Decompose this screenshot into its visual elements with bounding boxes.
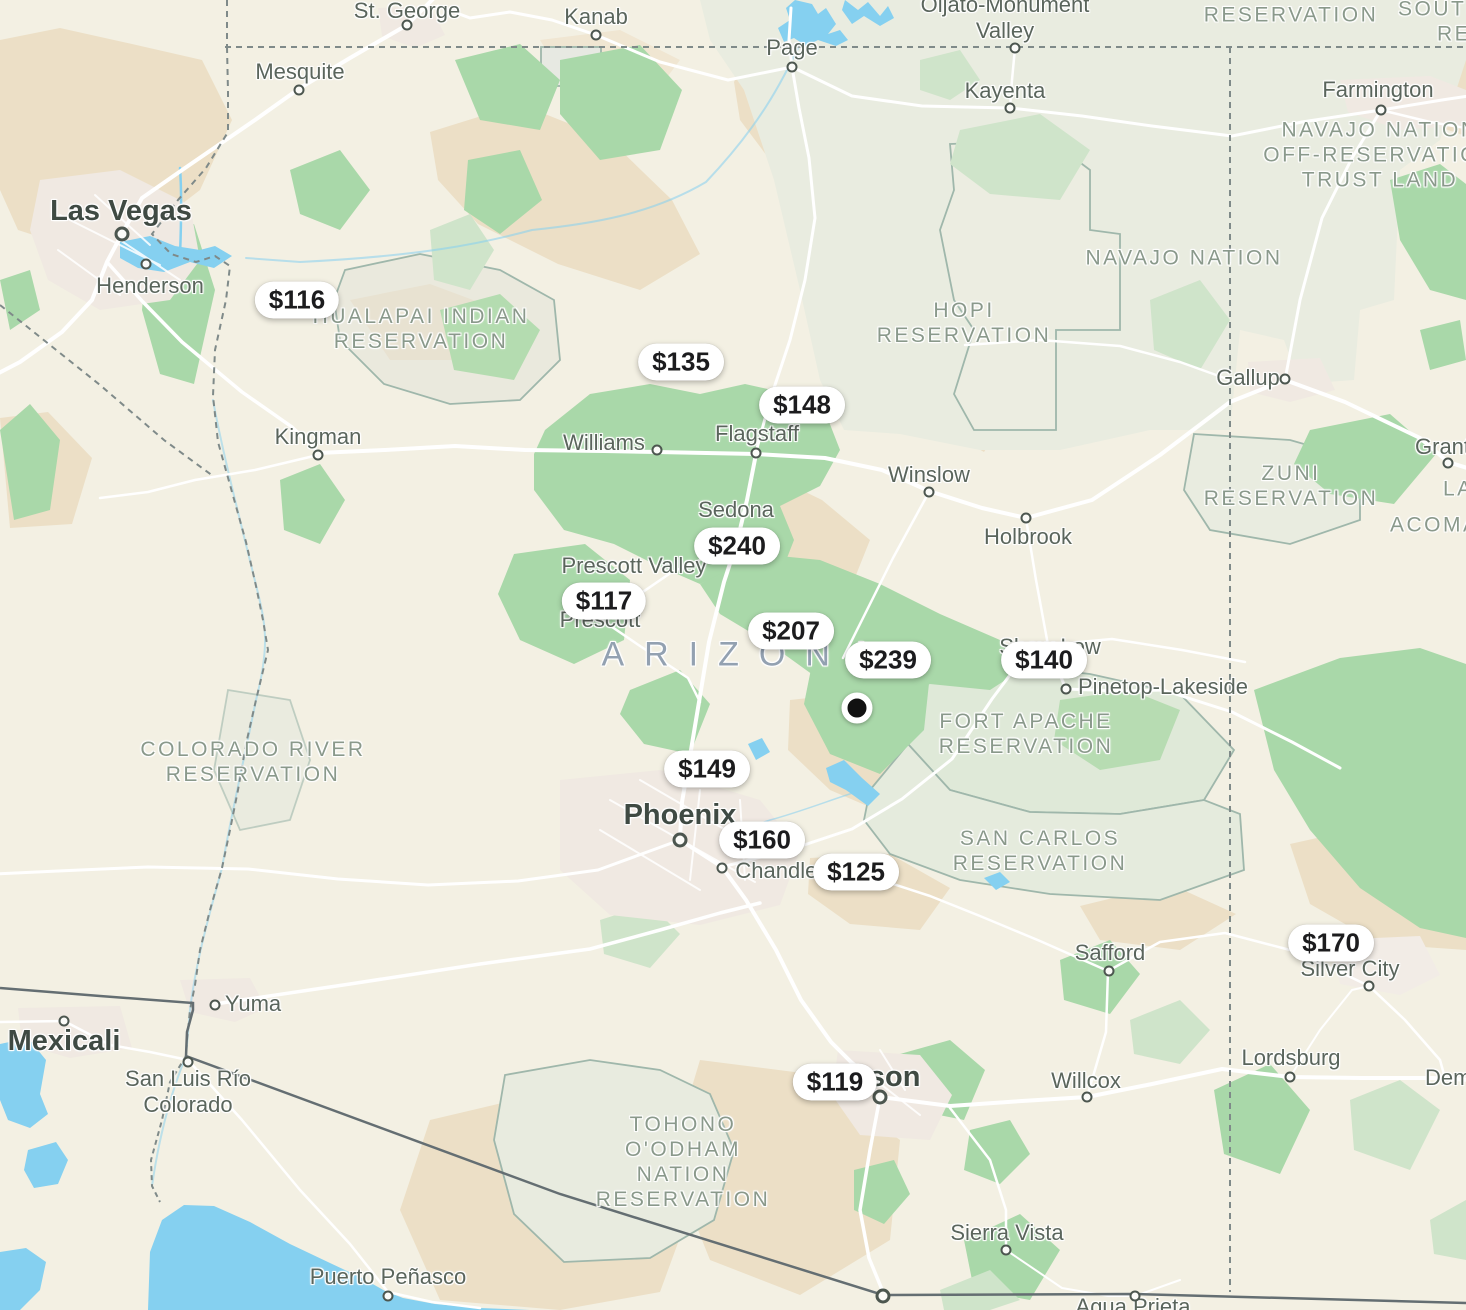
price-pin[interactable]: $116: [255, 282, 339, 319]
price-pin[interactable]: $239: [845, 642, 931, 679]
selected-listing-pin[interactable]: [842, 693, 873, 724]
price-pin[interactable]: $117: [562, 583, 646, 620]
price-pin[interactable]: $160: [719, 822, 805, 859]
price-pin[interactable]: $207: [748, 613, 834, 650]
map-canvas[interactable]: ARIZONA RESERVATIONSOUTHRESENAVAJO NATIO…: [0, 0, 1466, 1310]
price-pin[interactable]: $170: [1288, 925, 1374, 962]
price-pin[interactable]: $240: [694, 528, 780, 565]
price-pin[interactable]: $140: [1001, 642, 1087, 679]
price-pin[interactable]: $148: [759, 387, 845, 424]
price-pin[interactable]: $119: [793, 1064, 877, 1101]
price-pin[interactable]: $149: [664, 751, 750, 788]
price-pin[interactable]: $125: [813, 854, 899, 891]
price-pins-layer: $116$135$148$240$117$207$239$140$149$160…: [0, 0, 1466, 1310]
price-pin[interactable]: $135: [638, 344, 724, 381]
